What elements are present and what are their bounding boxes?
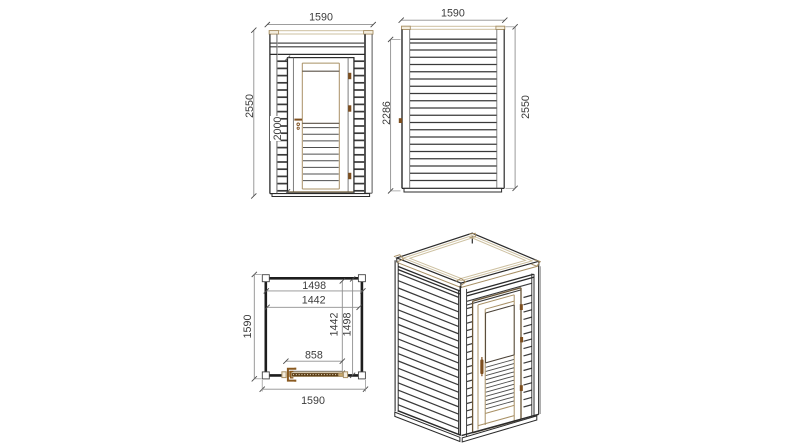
svg-text:2550: 2550: [520, 95, 532, 119]
svg-text:1590: 1590: [309, 12, 333, 24]
svg-text:1442: 1442: [302, 295, 326, 307]
svg-text:2550: 2550: [244, 94, 256, 118]
svg-text:2286: 2286: [381, 101, 393, 125]
svg-text:2000: 2000: [272, 117, 284, 141]
svg-text:858: 858: [305, 349, 323, 361]
svg-text:1442: 1442: [328, 313, 340, 337]
svg-text:1498: 1498: [302, 280, 326, 292]
svg-text:1590: 1590: [441, 7, 465, 19]
svg-text:1590: 1590: [242, 315, 254, 339]
svg-text:1498: 1498: [342, 313, 354, 337]
svg-text:1590: 1590: [301, 395, 325, 407]
